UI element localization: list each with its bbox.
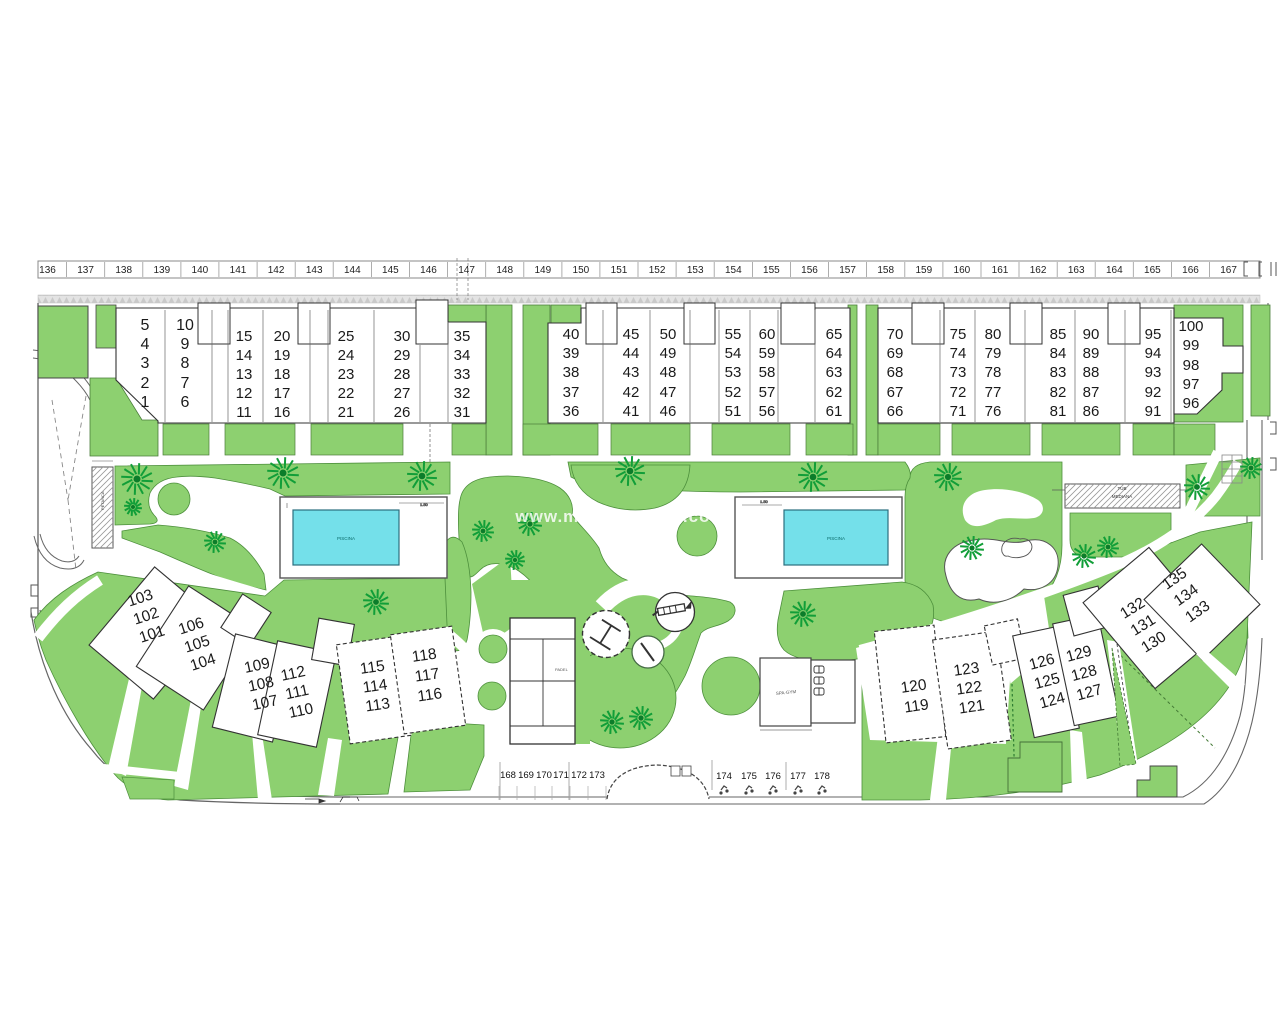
svg-text:146: 146	[420, 265, 437, 276]
svg-text:59: 59	[759, 345, 776, 362]
svg-text:48: 48	[660, 364, 677, 381]
svg-text:40: 40	[563, 326, 580, 343]
svg-text:169: 169	[518, 770, 534, 781]
svg-text:92: 92	[1145, 384, 1162, 401]
svg-text:90: 90	[1083, 326, 1100, 343]
svg-text:75: 75	[950, 326, 967, 343]
svg-text:82: 82	[1050, 384, 1067, 401]
svg-text:56: 56	[759, 403, 776, 420]
svg-text:78: 78	[985, 364, 1002, 381]
svg-text:119: 119	[903, 696, 930, 716]
svg-text:156: 156	[801, 265, 818, 276]
svg-text:22: 22	[338, 385, 355, 402]
svg-text:72: 72	[950, 384, 967, 401]
svg-text:143: 143	[306, 265, 323, 276]
svg-text:93: 93	[1145, 364, 1162, 381]
svg-text:24: 24	[338, 347, 355, 364]
svg-text:170: 170	[536, 770, 552, 781]
svg-text:162: 162	[1030, 265, 1047, 276]
svg-text:155: 155	[763, 265, 780, 276]
svg-text:144: 144	[344, 265, 361, 276]
svg-text:1.50: 1.50	[760, 499, 769, 504]
svg-text:76: 76	[985, 403, 1002, 420]
svg-text:69: 69	[887, 345, 904, 362]
svg-text:63: 63	[826, 364, 843, 381]
svg-text:157: 157	[839, 265, 856, 276]
svg-text:33: 33	[454, 366, 471, 383]
svg-text:85: 85	[1050, 326, 1067, 343]
svg-text:PISCINA: PISCINA	[337, 536, 355, 541]
svg-text:3: 3	[141, 355, 150, 372]
svg-text:80: 80	[985, 326, 1002, 343]
svg-text:136: 136	[39, 265, 56, 276]
svg-text:165: 165	[1144, 265, 1161, 276]
svg-text:1.50: 1.50	[420, 502, 429, 507]
svg-text:35: 35	[454, 328, 471, 345]
svg-text:20: 20	[274, 328, 291, 345]
svg-text:12: 12	[236, 385, 253, 402]
svg-text:121: 121	[958, 697, 986, 717]
svg-text:27: 27	[394, 385, 411, 402]
svg-text:153: 153	[687, 265, 704, 276]
svg-text:140: 140	[192, 265, 209, 276]
svg-text:9: 9	[181, 336, 190, 353]
svg-text:163: 163	[1068, 265, 1085, 276]
svg-text:116: 116	[416, 685, 443, 705]
svg-text:164: 164	[1106, 265, 1123, 276]
svg-text:37: 37	[563, 384, 580, 401]
svg-text:28: 28	[394, 366, 411, 383]
svg-text:8: 8	[181, 355, 190, 372]
svg-text:74: 74	[950, 345, 967, 362]
svg-text:5: 5	[141, 317, 150, 334]
svg-text:13: 13	[236, 366, 253, 383]
svg-text:67: 67	[887, 384, 904, 401]
svg-text:97: 97	[1183, 376, 1200, 393]
svg-text:71: 71	[950, 403, 967, 420]
svg-text:137: 137	[77, 265, 94, 276]
svg-text:141: 141	[230, 265, 247, 276]
svg-text:www.mediterraneo.com: www.mediterraneo.com	[514, 507, 726, 526]
svg-text:26: 26	[394, 404, 411, 421]
svg-text:PADEL: PADEL	[555, 667, 569, 672]
svg-text:148: 148	[496, 265, 513, 276]
svg-text:142: 142	[268, 265, 285, 276]
svg-text:95: 95	[1145, 326, 1162, 343]
svg-text:114: 114	[362, 676, 389, 696]
svg-text:94: 94	[1145, 345, 1162, 362]
svg-text:86: 86	[1083, 403, 1100, 420]
svg-text:158: 158	[877, 265, 894, 276]
svg-text:54: 54	[725, 345, 742, 362]
svg-text:32: 32	[454, 385, 471, 402]
svg-text:45: 45	[623, 326, 640, 343]
svg-text:44: 44	[623, 345, 640, 362]
svg-text:7: 7	[181, 375, 190, 392]
svg-text:TUB: TUB	[1118, 486, 1127, 491]
svg-text:19: 19	[274, 347, 291, 364]
svg-text:115: 115	[359, 658, 386, 678]
svg-text:6: 6	[181, 394, 190, 411]
svg-text:176: 176	[765, 771, 781, 782]
svg-text:161: 161	[992, 265, 1009, 276]
svg-text:138: 138	[115, 265, 132, 276]
svg-text:42: 42	[623, 384, 640, 401]
svg-text:113: 113	[364, 695, 391, 715]
svg-text:89: 89	[1083, 345, 1100, 362]
svg-text:55: 55	[725, 326, 742, 343]
svg-text:175: 175	[741, 771, 757, 782]
svg-text:168: 168	[500, 770, 516, 781]
svg-text:96: 96	[1183, 395, 1200, 412]
svg-text:84: 84	[1050, 345, 1067, 362]
svg-text:147: 147	[458, 265, 475, 276]
svg-text:172: 172	[571, 770, 587, 781]
svg-text:38: 38	[563, 364, 580, 381]
svg-text:87: 87	[1083, 384, 1100, 401]
svg-text:173: 173	[589, 770, 605, 781]
svg-text:41: 41	[623, 403, 640, 420]
svg-text:178: 178	[814, 771, 830, 782]
svg-text:47: 47	[660, 384, 677, 401]
svg-text:4: 4	[141, 336, 150, 353]
svg-text:57: 57	[759, 384, 776, 401]
svg-text:120: 120	[900, 676, 928, 696]
svg-text:177: 177	[790, 771, 806, 782]
svg-text:91: 91	[1145, 403, 1162, 420]
svg-text:29: 29	[394, 347, 411, 364]
svg-text:166: 166	[1182, 265, 1199, 276]
svg-text:152: 152	[649, 265, 666, 276]
svg-text:77: 77	[985, 384, 1002, 401]
svg-text:11: 11	[236, 404, 252, 421]
svg-text:167: 167	[1220, 265, 1237, 276]
svg-text:51: 51	[725, 403, 742, 420]
svg-text:70: 70	[887, 326, 904, 343]
svg-text:62: 62	[826, 384, 843, 401]
svg-text:53: 53	[725, 364, 742, 381]
svg-text:81: 81	[1050, 403, 1067, 420]
svg-text:66: 66	[887, 403, 904, 420]
svg-text:52: 52	[725, 384, 742, 401]
svg-text:PISCINA: PISCINA	[827, 536, 845, 541]
svg-text:79: 79	[985, 345, 1002, 362]
svg-text:151: 151	[611, 265, 628, 276]
svg-text:99: 99	[1183, 337, 1200, 354]
svg-text:150: 150	[573, 265, 590, 276]
svg-text:2: 2	[141, 375, 150, 392]
svg-text:PETANCA: PETANCA	[100, 491, 105, 510]
svg-text:160: 160	[954, 265, 971, 276]
svg-text:98: 98	[1183, 357, 1200, 374]
svg-text:30: 30	[394, 328, 411, 345]
svg-text:73: 73	[950, 364, 967, 381]
svg-text:1: 1	[141, 394, 150, 411]
svg-text:36: 36	[563, 403, 580, 420]
svg-text:145: 145	[382, 265, 399, 276]
svg-text:174: 174	[716, 771, 732, 782]
svg-text:49: 49	[660, 345, 677, 362]
svg-text:65: 65	[826, 326, 843, 343]
svg-text:18: 18	[274, 366, 291, 383]
svg-text:15: 15	[236, 328, 253, 345]
svg-text:88: 88	[1083, 364, 1100, 381]
svg-text:39: 39	[563, 345, 580, 362]
svg-text:43: 43	[623, 364, 640, 381]
svg-text:100: 100	[1178, 318, 1203, 335]
svg-text:25: 25	[338, 328, 355, 345]
svg-text:14: 14	[236, 347, 253, 364]
svg-text:46: 46	[660, 403, 677, 420]
svg-text:149: 149	[534, 265, 551, 276]
svg-text:61: 61	[826, 403, 843, 420]
svg-text:31: 31	[454, 404, 471, 421]
svg-text:68: 68	[887, 364, 904, 381]
svg-text:123: 123	[952, 659, 980, 679]
svg-text:159: 159	[915, 265, 932, 276]
svg-text:154: 154	[725, 265, 742, 276]
svg-text:58: 58	[759, 364, 776, 381]
svg-text:21: 21	[338, 404, 355, 421]
svg-text:83: 83	[1050, 364, 1067, 381]
svg-text:60: 60	[759, 326, 776, 343]
svg-text:MEDIANA: MEDIANA	[1112, 494, 1133, 499]
svg-text:16: 16	[274, 404, 291, 421]
svg-text:139: 139	[153, 265, 170, 276]
svg-text:118: 118	[411, 646, 438, 666]
svg-text:171: 171	[553, 770, 569, 781]
svg-text:10: 10	[176, 317, 194, 334]
svg-text:23: 23	[338, 366, 355, 383]
svg-text:122: 122	[955, 678, 983, 698]
svg-text:117: 117	[414, 665, 441, 685]
svg-text:34: 34	[454, 347, 471, 364]
svg-text:17: 17	[274, 385, 291, 402]
svg-text:50: 50	[660, 326, 677, 343]
svg-text:64: 64	[826, 345, 843, 362]
